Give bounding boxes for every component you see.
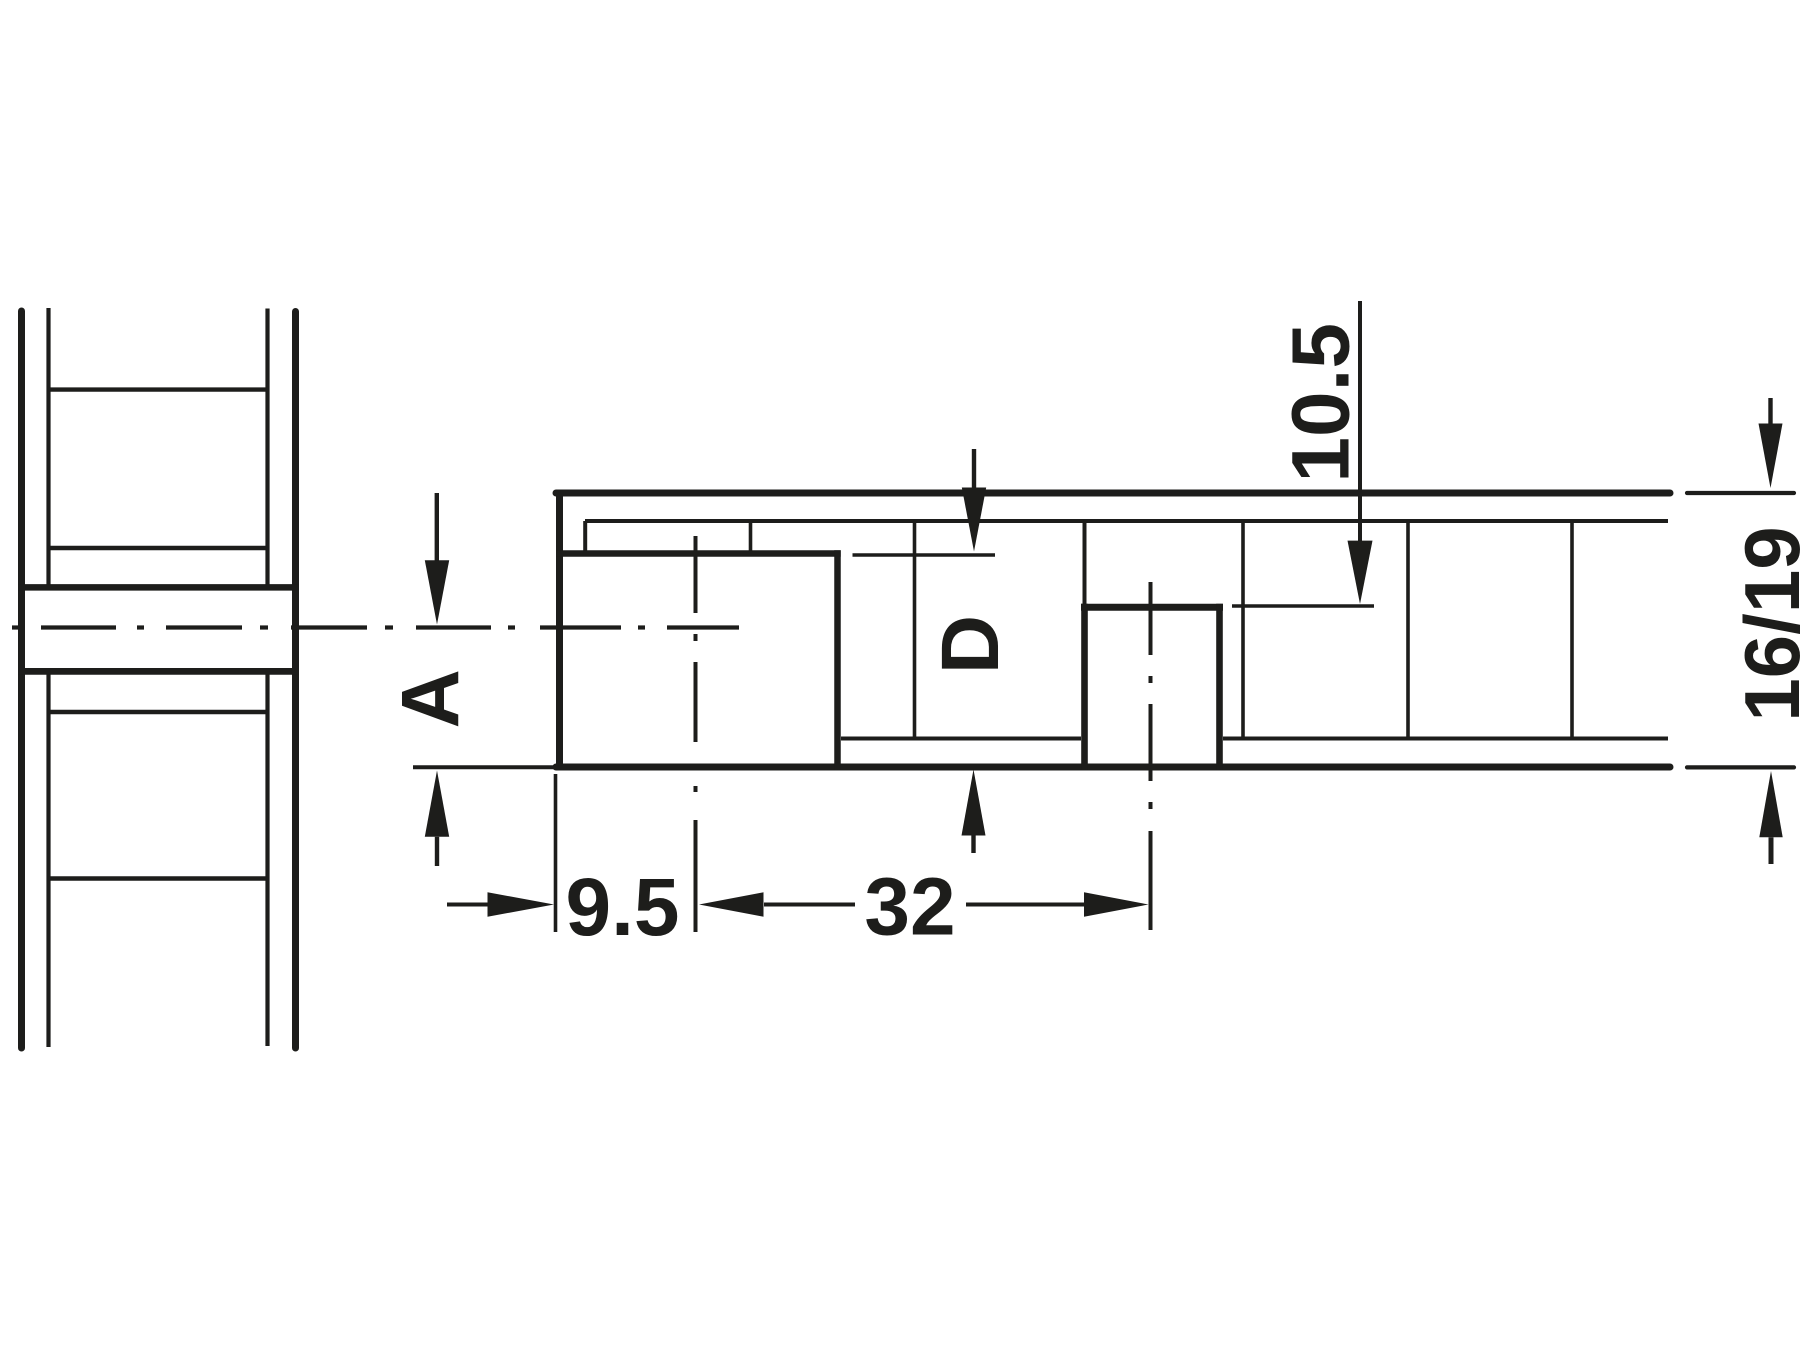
svg-text:A: A [386,669,477,728]
svg-text:D: D [925,615,1016,674]
svg-text:16/19: 16/19 [1728,526,1800,721]
svg-text:10.5: 10.5 [1276,323,1367,483]
svg-text:32: 32 [864,862,955,953]
svg-text:9.5: 9.5 [566,862,680,953]
